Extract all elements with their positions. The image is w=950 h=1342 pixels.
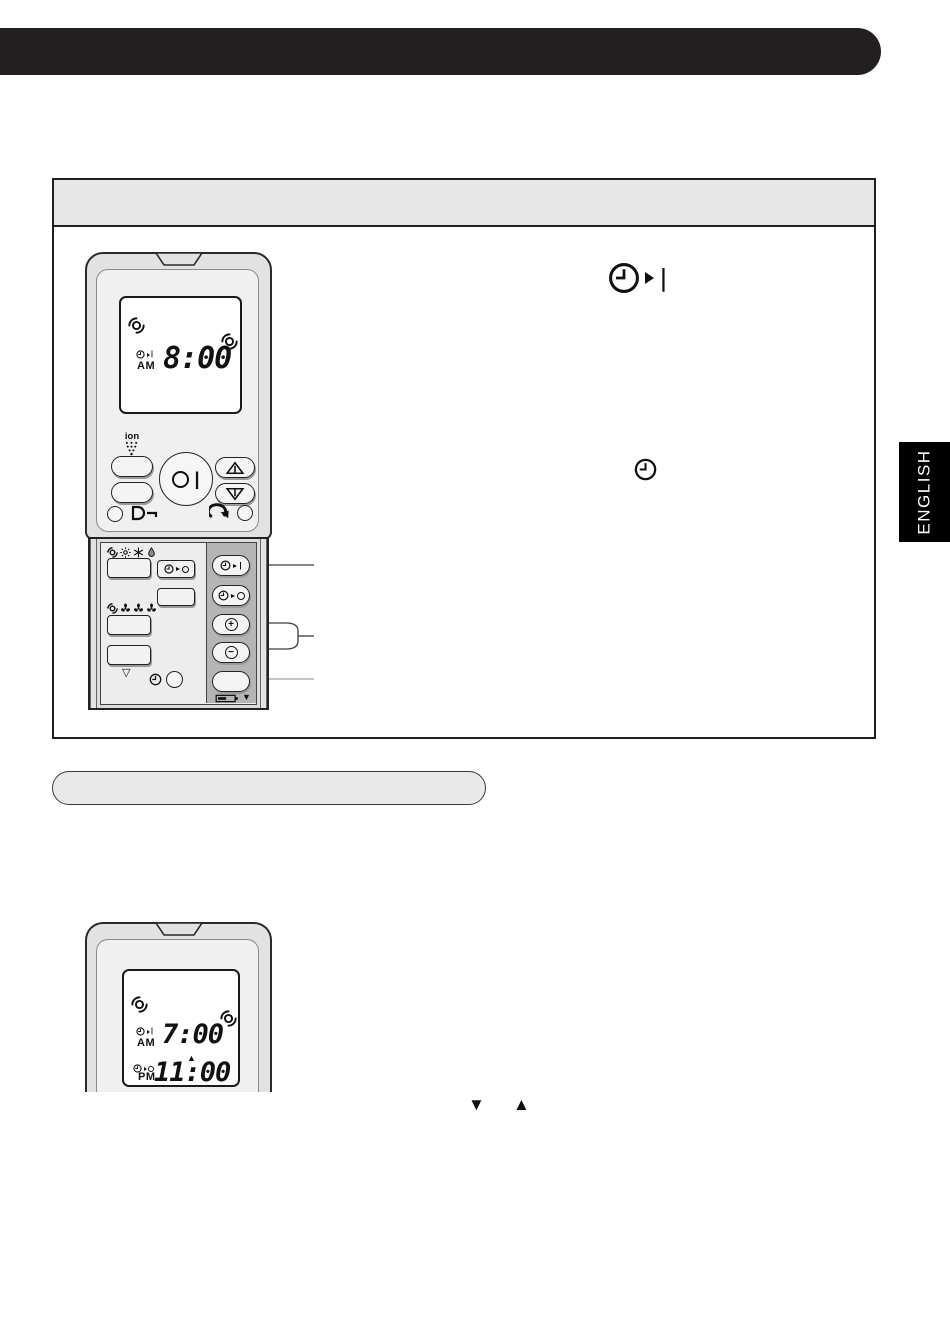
lcd-am-label: AM (137, 360, 155, 372)
slide-rail-left (90, 539, 97, 708)
lcd-timer-on-icon: | (136, 1027, 153, 1036)
power-button: | (159, 452, 213, 506)
fan-icon-row (107, 603, 157, 614)
lcd-off-time: 11:00 (154, 1059, 230, 1086)
lcd-display: | AM 8:00 (119, 296, 242, 414)
remote-top-notch (155, 252, 203, 266)
triangle-down-icon: ▼ (468, 1096, 485, 1113)
time-reverse-button: − (212, 642, 250, 663)
lcd-on-period: AM (137, 1037, 155, 1049)
clock-set-button (166, 671, 183, 688)
arrow-right-icon (147, 1030, 150, 1034)
timer-off-state-icon (182, 566, 189, 573)
triangle-up-icon: ▲ (513, 1096, 530, 1113)
temp-up-button (215, 457, 255, 478)
lcd-display: | AM 7:00 ▲ PM 11:00 (122, 969, 240, 1087)
swing-check-icon: ▽ (122, 666, 130, 679)
english-tab-label: ENGLISH (915, 449, 935, 534)
lcd-time-value: 8:00 (163, 344, 231, 374)
mode-button (107, 558, 151, 578)
ion-spray-icon (124, 441, 139, 456)
heat-sun-icon (120, 547, 131, 558)
remote-control-illustration-top: | AM 8:00 ion | (85, 252, 272, 710)
auto-swirl-icon (107, 547, 118, 558)
swing-swirl-icon (131, 996, 148, 1013)
time-advance-button: + (212, 614, 250, 635)
timer-on-icon: | (608, 262, 667, 294)
timer-on-state-glyph: | (239, 562, 241, 570)
lcd-on-time: 7:00 (162, 1021, 223, 1048)
function-button-left (111, 482, 153, 503)
subsection-pill-header (52, 771, 486, 805)
mode-icon-row (107, 547, 157, 558)
clock-icon (218, 590, 229, 601)
arrow-right-icon (233, 564, 237, 568)
blank-small-button (157, 588, 195, 606)
fan-button (107, 615, 151, 635)
timer-on-state-glyph: | (151, 1028, 153, 1035)
dry-drop-icon (146, 547, 157, 558)
triangle-down-outline-icon (224, 487, 246, 501)
swing-button (107, 645, 151, 665)
clock-icon (220, 560, 231, 571)
remote-top-notch (155, 922, 203, 936)
ion-button (111, 456, 153, 477)
english-language-tab: ENGLISH (899, 442, 950, 542)
small-round-button (237, 505, 253, 521)
clock-icon (164, 564, 174, 574)
minus-icon: − (228, 648, 234, 658)
timer-on-state-glyph: | (151, 351, 153, 358)
arrow-right-icon (147, 353, 150, 357)
clock-set-icon (149, 673, 162, 686)
arrow-right-icon (144, 1067, 147, 1071)
timer-on-state-glyph: | (661, 266, 666, 291)
temp-down-button (215, 483, 255, 504)
lcd-timer-on-icon: | (136, 350, 153, 359)
slide-rail-right (260, 539, 267, 708)
timer-off-small-button (157, 560, 195, 578)
set-cancel-button (212, 671, 250, 692)
fan-speed-icon (146, 603, 157, 614)
auto-swirl-icon (107, 603, 118, 614)
remote-control-illustration-bottom: | AM 7:00 ▲ PM 11:00 (85, 922, 272, 1092)
display-select-icon (129, 504, 159, 522)
clock-icon (136, 1027, 145, 1036)
slide-panel-face: ▽ | (100, 542, 257, 705)
manual-page: | (0, 0, 950, 1342)
timer-off-state-icon (237, 592, 245, 600)
fan-speed-icon (120, 603, 131, 614)
power-on-bar-icon: | (194, 469, 199, 490)
clock-icon (634, 458, 657, 481)
clock-icon (136, 350, 145, 359)
arrow-right-icon (231, 594, 235, 598)
remote-body: | AM 7:00 ▲ PM 11:00 (85, 922, 272, 1092)
battery-icon (215, 694, 239, 703)
remote-body: | AM 8:00 ion | (85, 252, 272, 540)
lcd-off-period: PM (138, 1071, 156, 1083)
slide-cover-open-panel: ▽ | (88, 537, 269, 710)
triangle-up-outline-icon (224, 461, 246, 475)
swing-swirl-icon (128, 317, 145, 334)
instruction-panel-header (54, 180, 874, 227)
reset-swoosh-icon (209, 503, 232, 521)
battery-cursor-icon: ▼ (242, 693, 251, 702)
chapter-header-bar (0, 28, 881, 75)
cool-snowflake-icon (133, 547, 144, 558)
clock-icon (608, 262, 640, 294)
power-off-circle-icon (172, 471, 189, 488)
timer-off-button (212, 585, 250, 606)
timer-on-button: | (212, 555, 250, 576)
fan-speed-icon (133, 603, 144, 614)
arrow-right-icon (176, 567, 180, 571)
plus-icon: + (228, 620, 234, 630)
arrow-right-icon (645, 272, 654, 284)
small-round-button (107, 506, 123, 522)
